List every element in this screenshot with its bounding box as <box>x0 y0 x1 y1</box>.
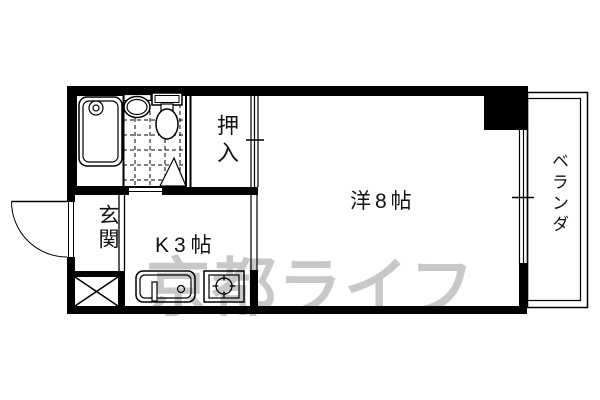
shaft-box-top-border <box>67 271 125 277</box>
entrance-door-panel <box>69 202 74 257</box>
floorplan-canvas: 押入 玄関 K3帖 洋8帖 ベランダ 京都ライフ <box>0 0 600 400</box>
watermark-text: 京都ライフ <box>146 253 476 323</box>
corner-pillar <box>484 86 528 130</box>
wall-left-upper <box>67 86 75 202</box>
closet-label: 押入 <box>210 114 242 168</box>
western-room-label: 洋8帖 <box>350 185 416 215</box>
window-glass-lines <box>520 130 528 263</box>
bathroom-unit <box>76 93 186 195</box>
shaft-x-mark <box>75 277 118 306</box>
closet-sliding-door <box>251 96 258 187</box>
wall-right-lower <box>519 263 527 314</box>
floorplan-drawing <box>0 0 600 400</box>
toilet-bowl <box>156 109 178 139</box>
wall-bath-south-left <box>67 187 128 195</box>
wall-bath-south-right <box>163 187 258 195</box>
entrance-label: 玄関 <box>92 204 122 252</box>
veranda-label: ベランダ <box>546 152 571 236</box>
wall-left-lower <box>67 257 75 314</box>
toilet-tank <box>152 93 182 105</box>
tub-drain-icon <box>89 101 103 115</box>
entrance-door-arc <box>12 202 68 258</box>
bath-door-threshold <box>129 187 163 195</box>
shaft-box-right-border <box>118 271 125 314</box>
bath-door-swing <box>160 158 186 186</box>
